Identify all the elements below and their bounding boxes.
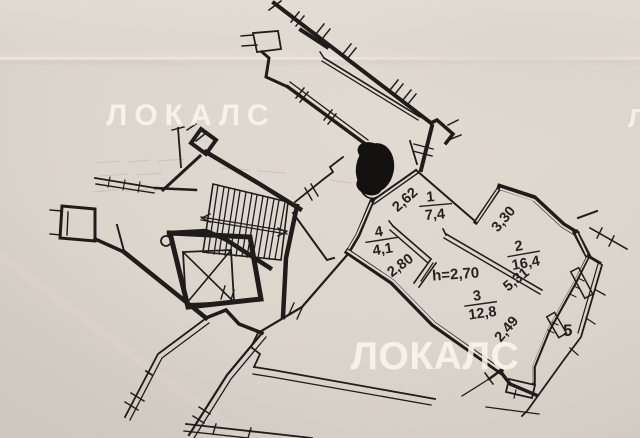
- svg-text:ЛО: ЛО: [628, 103, 640, 133]
- svg-text:5: 5: [563, 321, 572, 340]
- svg-text:7,4: 7,4: [424, 206, 445, 224]
- svg-text:4,1: 4,1: [372, 240, 394, 259]
- svg-text:1: 1: [426, 189, 435, 206]
- svg-text:h=2,70: h=2,70: [432, 264, 480, 284]
- svg-text:ЛОКАЛС: ЛОКАЛС: [106, 99, 275, 132]
- svg-text:ЛОКАЛС: ЛОКАЛС: [351, 335, 520, 378]
